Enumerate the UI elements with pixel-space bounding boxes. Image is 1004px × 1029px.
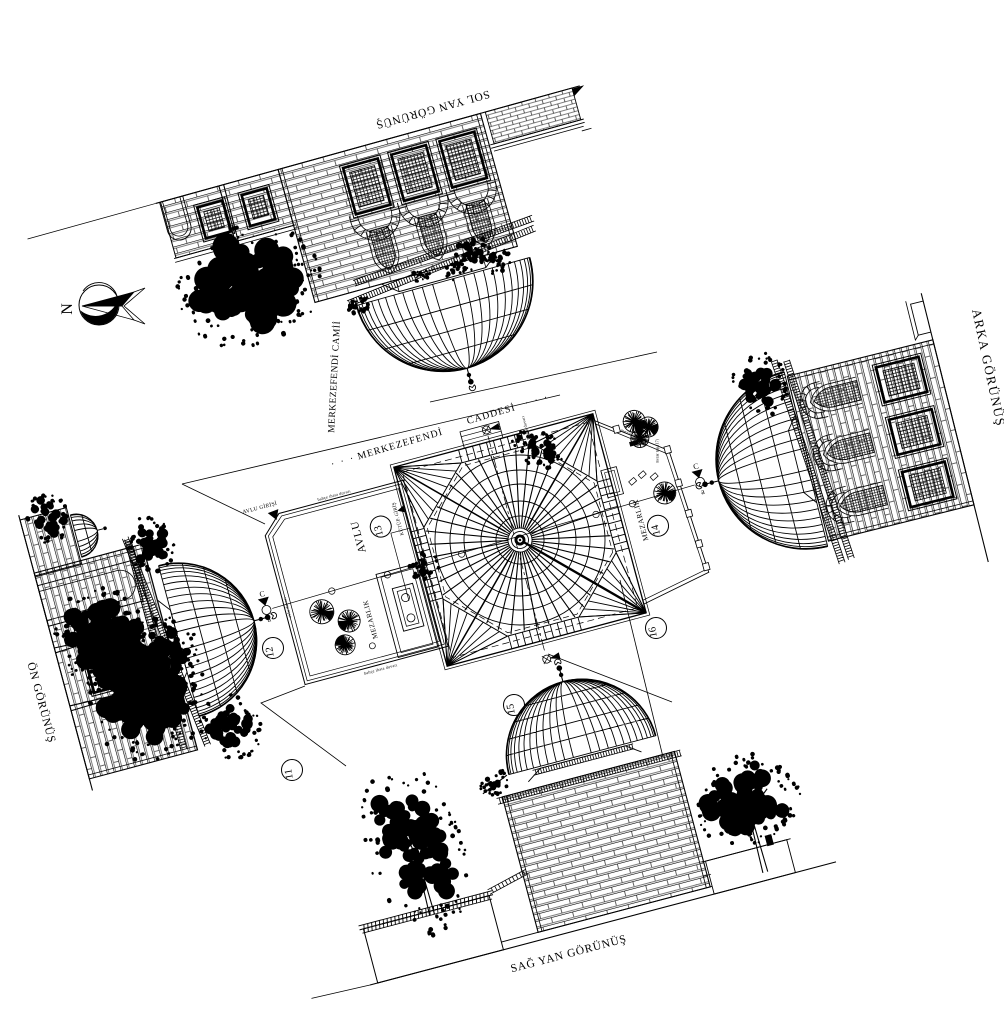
svg-text:12: 12 bbox=[264, 646, 277, 658]
svg-text:15: 15 bbox=[505, 703, 518, 715]
svg-text:mezar taşı (17): mezar taşı (17) bbox=[655, 438, 660, 463]
svg-text:16: 16 bbox=[647, 626, 660, 638]
svg-text:11: 11 bbox=[283, 768, 296, 780]
svg-text:N: N bbox=[59, 303, 76, 315]
